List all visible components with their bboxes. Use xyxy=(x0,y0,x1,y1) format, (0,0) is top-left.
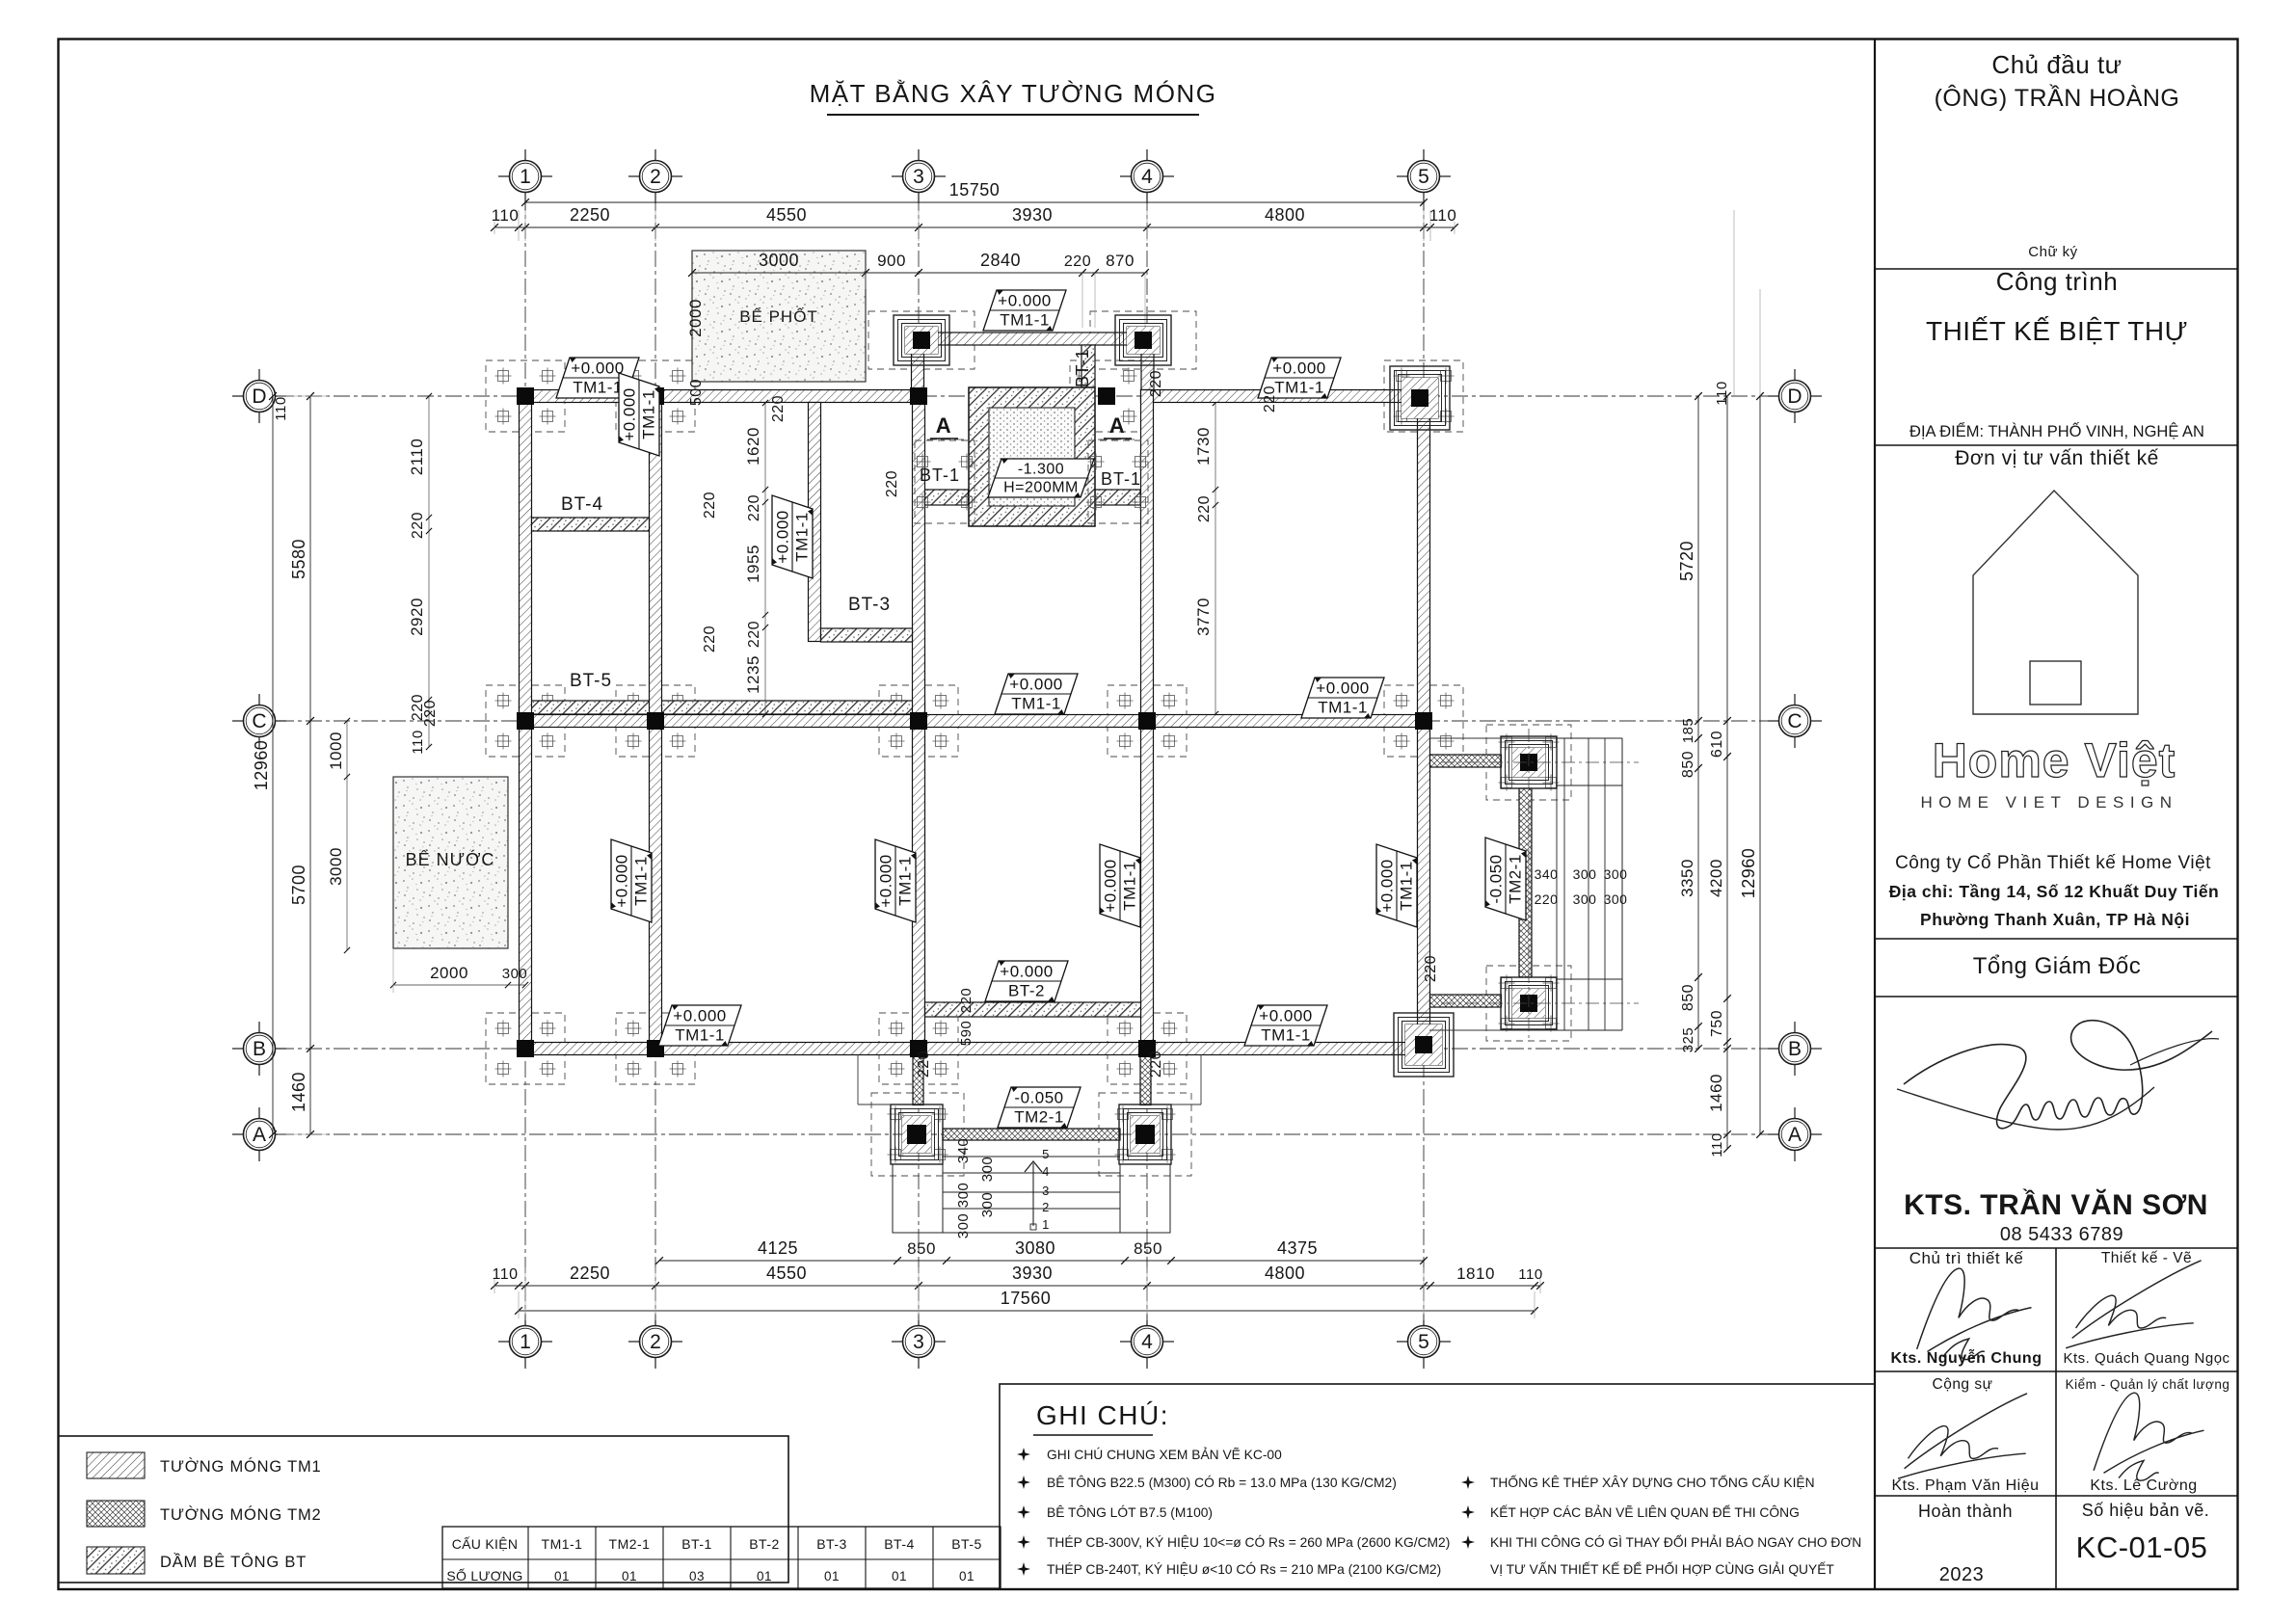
svg-text:08 5433 6789: 08 5433 6789 xyxy=(2000,1224,2123,1245)
svg-text:340: 340 xyxy=(1535,866,1559,882)
svg-text:750: 750 xyxy=(1709,1010,1725,1037)
svg-text:1: 1 xyxy=(520,1331,531,1353)
svg-text:Thiết kế - Vẽ: Thiết kế - Vẽ xyxy=(2101,1250,2192,1266)
svg-text:2: 2 xyxy=(650,166,661,188)
svg-text:+0.000: +0.000 xyxy=(774,510,792,563)
svg-text:-0.050: -0.050 xyxy=(1014,1089,1063,1107)
svg-text:BÊ TÔNG LÓT B7.5 (M100): BÊ TÔNG LÓT B7.5 (M100) xyxy=(1047,1504,1213,1520)
svg-text:110: 110 xyxy=(410,730,426,754)
svg-text:TƯỜNG MÓNG TM1: TƯỜNG MÓNG TM1 xyxy=(160,1457,321,1476)
svg-text:110: 110 xyxy=(492,206,520,225)
svg-text:3: 3 xyxy=(1042,1184,1050,1198)
svg-text:325: 325 xyxy=(1680,1027,1696,1053)
svg-text:15750: 15750 xyxy=(949,180,1001,200)
svg-text:300: 300 xyxy=(955,1183,972,1209)
svg-text:185: 185 xyxy=(1680,718,1696,744)
svg-text:300: 300 xyxy=(979,1192,996,1218)
svg-text:900: 900 xyxy=(877,252,906,270)
svg-text:+0.000: +0.000 xyxy=(1259,1007,1312,1025)
svg-text:4550: 4550 xyxy=(766,1264,807,1283)
svg-text:BT-3: BT-3 xyxy=(848,595,891,615)
svg-text:BỂ NƯỚC: BỂ NƯỚC xyxy=(406,849,495,869)
svg-text:1955: 1955 xyxy=(744,545,762,583)
svg-text:Cộng sự: Cộng sự xyxy=(1933,1376,1993,1393)
svg-text:HOME VIET DESIGN: HOME VIET DESIGN xyxy=(1920,793,2177,811)
svg-text:12960: 12960 xyxy=(1739,848,1758,899)
svg-text:BT-1: BT-1 xyxy=(1073,349,1092,387)
svg-text:TM1-1: TM1-1 xyxy=(1121,861,1139,911)
svg-text:850: 850 xyxy=(1680,751,1696,778)
svg-text:220: 220 xyxy=(1064,253,1091,270)
svg-text:BT-1: BT-1 xyxy=(1101,469,1141,489)
svg-text:KẾT HỢP CÁC BẢN VẼ LIÊN QUAN Đ: KẾT HỢP CÁC BẢN VẼ LIÊN QUAN ĐỂ THI CÔNG xyxy=(1490,1503,1800,1520)
svg-text:BT-5: BT-5 xyxy=(951,1536,982,1552)
svg-text:2000: 2000 xyxy=(430,964,468,982)
svg-text:2: 2 xyxy=(650,1331,661,1353)
svg-text:1235: 1235 xyxy=(744,655,762,694)
svg-text:THIẾT KẾ BIỆT THỰ: THIẾT KẾ BIỆT THỰ xyxy=(1926,316,2188,346)
svg-text:220: 220 xyxy=(1148,1051,1164,1078)
svg-text:A: A xyxy=(1788,1124,1802,1146)
svg-text:1620: 1620 xyxy=(744,427,762,466)
svg-text:01: 01 xyxy=(892,1569,907,1583)
svg-text:01: 01 xyxy=(622,1569,637,1583)
svg-text:TM1-1: TM1-1 xyxy=(573,379,623,397)
svg-text:220: 220 xyxy=(1262,386,1278,412)
svg-text:TM1-1: TM1-1 xyxy=(896,856,915,906)
svg-text:2023: 2023 xyxy=(1939,1564,1985,1585)
svg-text:Chủ trì thiết kế: Chủ trì thiết kế xyxy=(1909,1249,2024,1267)
svg-text:300: 300 xyxy=(1604,866,1628,882)
svg-text:TM1-1: TM1-1 xyxy=(542,1536,583,1552)
svg-text:220: 220 xyxy=(958,988,974,1014)
svg-text:BT-2: BT-2 xyxy=(1008,982,1045,1000)
svg-text:4550: 4550 xyxy=(766,205,807,225)
svg-text:C: C xyxy=(252,710,266,732)
svg-text:Kiểm - Quản lý chất lượng: Kiểm - Quản lý chất lượng xyxy=(2066,1377,2230,1392)
svg-text:1810: 1810 xyxy=(1456,1264,1495,1283)
svg-text:500: 500 xyxy=(688,379,705,406)
svg-text:BT-2: BT-2 xyxy=(749,1536,780,1552)
svg-text:TM1-1: TM1-1 xyxy=(1318,699,1368,717)
svg-text:3: 3 xyxy=(913,1331,924,1353)
svg-text:Tổng Giám Đốc: Tổng Giám Đốc xyxy=(1973,953,2142,979)
svg-text:3770: 3770 xyxy=(1194,598,1213,636)
svg-text:-0.050: -0.050 xyxy=(1487,854,1506,903)
svg-text:BT-3: BT-3 xyxy=(816,1536,847,1552)
svg-text:SỐ LƯỢNG: SỐ LƯỢNG xyxy=(446,1567,522,1583)
svg-text:+0.000: +0.000 xyxy=(1102,859,1120,912)
svg-text:+0.000: +0.000 xyxy=(1009,676,1062,694)
svg-text:KC-01-05: KC-01-05 xyxy=(2076,1530,2208,1564)
svg-text:D: D xyxy=(252,386,266,408)
svg-text:+0.000: +0.000 xyxy=(613,854,631,907)
svg-text:GHI CHÚ CHUNG XEM BẢN VẼ KC-00: GHI CHÚ CHUNG XEM BẢN VẼ KC-00 xyxy=(1047,1447,1282,1462)
svg-text:110: 110 xyxy=(1518,1266,1542,1283)
svg-text:2110: 2110 xyxy=(408,439,426,476)
svg-text:B: B xyxy=(1788,1038,1802,1060)
svg-text:220: 220 xyxy=(1423,955,1439,982)
svg-text:CẤU KIỆN: CẤU KIỆN xyxy=(452,1536,519,1552)
svg-text:2000: 2000 xyxy=(686,299,705,337)
svg-text:3350: 3350 xyxy=(1678,859,1696,897)
svg-text:3930: 3930 xyxy=(1012,205,1053,225)
svg-text:110: 110 xyxy=(273,396,289,420)
svg-text:Kts. Phạm Văn Hiệu: Kts. Phạm Văn Hiệu xyxy=(1891,1477,2039,1494)
svg-text:1: 1 xyxy=(520,166,531,188)
svg-text:300: 300 xyxy=(1604,891,1628,907)
svg-text:01: 01 xyxy=(554,1569,570,1583)
svg-text:BT-1: BT-1 xyxy=(920,466,960,485)
svg-text:220: 220 xyxy=(702,625,718,652)
svg-text:TƯỜNG MÓNG TM2: TƯỜNG MÓNG TM2 xyxy=(160,1505,321,1524)
svg-text:110: 110 xyxy=(492,1266,518,1283)
svg-text:THÉP CB-300V, KÝ HIỆU 10<=ø CÓ: THÉP CB-300V, KÝ HIỆU 10<=ø CÓ Rs = 260 … xyxy=(1047,1534,1450,1550)
svg-text:TM1-1: TM1-1 xyxy=(1274,379,1324,397)
svg-text:220: 220 xyxy=(770,395,787,422)
svg-text:300: 300 xyxy=(1573,866,1597,882)
svg-text:01: 01 xyxy=(757,1569,772,1583)
svg-text:01: 01 xyxy=(824,1569,840,1583)
svg-text:KTS. TRẦN VĂN SƠN: KTS. TRẦN VĂN SƠN xyxy=(1904,1188,2208,1221)
svg-text:4125: 4125 xyxy=(758,1238,798,1258)
svg-text:2: 2 xyxy=(1042,1200,1050,1214)
svg-text:12960: 12960 xyxy=(252,740,271,791)
svg-text:220: 220 xyxy=(1535,891,1559,907)
svg-text:+0.000: +0.000 xyxy=(571,359,624,378)
svg-text:220: 220 xyxy=(1196,495,1213,522)
svg-text:Home Việt: Home Việt xyxy=(1933,733,2176,787)
svg-text:2250: 2250 xyxy=(570,205,610,225)
svg-text:4200: 4200 xyxy=(1707,859,1725,897)
svg-text:17560: 17560 xyxy=(1001,1289,1052,1308)
svg-text:(ÔNG) TRẦN HOÀNG: (ÔNG) TRẦN HOÀNG xyxy=(1935,84,2180,112)
svg-text:1: 1 xyxy=(1042,1217,1050,1232)
svg-text:3000: 3000 xyxy=(327,847,345,886)
svg-text:TM1-1: TM1-1 xyxy=(793,512,812,562)
svg-text:TM1-1: TM1-1 xyxy=(1000,311,1050,330)
svg-text:TM1-1: TM1-1 xyxy=(640,389,658,439)
svg-text:Công ty Cổ Phần Thiết kế Home: Công ty Cổ Phần Thiết kế Home Việt xyxy=(1895,853,2211,873)
svg-text:BT-4: BT-4 xyxy=(561,494,603,515)
svg-text:+0.000: +0.000 xyxy=(1316,679,1369,698)
svg-text:BT-1: BT-1 xyxy=(681,1536,712,1552)
svg-text:220: 220 xyxy=(702,492,718,519)
svg-text:5: 5 xyxy=(1042,1147,1050,1161)
svg-text:-1.300: -1.300 xyxy=(1018,462,1064,478)
svg-text:4800: 4800 xyxy=(1265,205,1305,225)
svg-text:A: A xyxy=(936,413,951,438)
svg-text:+0.000: +0.000 xyxy=(998,292,1051,310)
svg-text:5: 5 xyxy=(1418,166,1429,188)
svg-text:3: 3 xyxy=(913,166,924,188)
svg-text:01: 01 xyxy=(959,1569,974,1583)
svg-text:THỐNG KÊ THÉP XÂY DỰNG CHO TỔN: THỐNG KÊ THÉP XÂY DỰNG CHO TỔNG CẤU KIỆN xyxy=(1490,1474,1815,1490)
svg-text:DẦM BÊ TÔNG BT: DẦM BÊ TÔNG BT xyxy=(160,1553,307,1571)
svg-text:5580: 5580 xyxy=(289,539,308,579)
svg-text:TM1-1: TM1-1 xyxy=(1398,861,1416,911)
svg-text:Địa chỉ: Tầng 14, Số 12 Khuất: Địa chỉ: Tầng 14, Số 12 Khuất Duy Tiến xyxy=(1889,882,2220,901)
svg-text:590: 590 xyxy=(958,1021,974,1047)
svg-text:220: 220 xyxy=(916,1051,932,1078)
svg-text:TM1-1: TM1-1 xyxy=(675,1026,725,1045)
svg-text:1000: 1000 xyxy=(327,732,345,770)
svg-text:+0.000: +0.000 xyxy=(1272,359,1325,378)
svg-text:+0.000: +0.000 xyxy=(621,387,639,440)
svg-text:Phường Thanh Xuân, TP Hà Nội: Phường Thanh Xuân, TP Hà Nội xyxy=(1920,910,2190,929)
svg-text:GHI CHÚ:: GHI CHÚ: xyxy=(1036,1400,1169,1430)
svg-text:4: 4 xyxy=(1141,166,1153,188)
svg-text:1460: 1460 xyxy=(1707,1074,1725,1112)
svg-text:A: A xyxy=(1109,413,1125,438)
svg-text:D: D xyxy=(1787,386,1802,408)
svg-text:3930: 3930 xyxy=(1012,1264,1053,1283)
svg-text:850: 850 xyxy=(1680,984,1696,1011)
svg-text:340: 340 xyxy=(955,1138,972,1164)
svg-text:Kts. Quách Quang Ngọc: Kts. Quách Quang Ngọc xyxy=(2063,1350,2229,1367)
svg-text:MẶT BẰNG XÂY TƯỜNG MÓNG: MẶT BẰNG XÂY TƯỜNG MÓNG xyxy=(810,79,1217,108)
svg-text:BT-4: BT-4 xyxy=(884,1536,915,1552)
svg-text:BT-5: BT-5 xyxy=(570,671,612,691)
svg-text:B: B xyxy=(253,1038,266,1060)
svg-text:870: 870 xyxy=(1106,252,1135,270)
svg-text:220: 220 xyxy=(746,494,762,521)
svg-text:5700: 5700 xyxy=(289,865,308,905)
svg-text:THÉP CB-240T, KÝ HIỆU ø<10 CÓ: THÉP CB-240T, KÝ HIỆU ø<10 CÓ Rs = 210 M… xyxy=(1047,1561,1441,1577)
svg-text:2920: 2920 xyxy=(408,598,426,636)
svg-text:+0.000: +0.000 xyxy=(673,1007,726,1025)
svg-text:2840: 2840 xyxy=(980,251,1021,270)
svg-text:ĐỊA ĐIỂM: THÀNH PHỐ VINH, NGHỆ: ĐỊA ĐIỂM: THÀNH PHỐ VINH, NGHỆ AN xyxy=(1909,421,2204,440)
svg-text:BỂ PHỐT: BỂ PHỐT xyxy=(739,306,818,326)
svg-text:300: 300 xyxy=(979,1157,996,1183)
svg-text:5: 5 xyxy=(1418,1331,1429,1353)
svg-text:1730: 1730 xyxy=(1194,427,1213,466)
svg-text:4: 4 xyxy=(1042,1164,1050,1179)
svg-text:+0.000: +0.000 xyxy=(1000,963,1053,981)
svg-text:610: 610 xyxy=(1709,731,1725,758)
svg-text:3080: 3080 xyxy=(1015,1238,1055,1258)
svg-text:220: 220 xyxy=(422,700,439,727)
svg-text:TM1-1: TM1-1 xyxy=(1011,695,1061,713)
svg-text:C: C xyxy=(1787,710,1802,732)
svg-text:850: 850 xyxy=(907,1239,936,1258)
svg-text:Hoàn thành: Hoàn thành xyxy=(1918,1502,2013,1521)
svg-text:TM1-1: TM1-1 xyxy=(632,856,651,906)
svg-text:220: 220 xyxy=(1148,370,1164,397)
svg-text:4375: 4375 xyxy=(1277,1238,1318,1258)
svg-text:TM2-1: TM2-1 xyxy=(609,1536,651,1552)
svg-text:220: 220 xyxy=(746,621,762,648)
svg-text:Kts. Nguyễn Chung: Kts. Nguyễn Chung xyxy=(1891,1348,2042,1367)
svg-text:850: 850 xyxy=(1134,1239,1162,1258)
svg-text:TM2-1: TM2-1 xyxy=(1014,1108,1064,1127)
svg-text:300: 300 xyxy=(1573,891,1597,907)
svg-text:+0.000: +0.000 xyxy=(877,854,895,907)
svg-text:Chủ đầu tư: Chủ đầu tư xyxy=(1991,50,2122,79)
svg-text:4: 4 xyxy=(1141,1331,1153,1353)
svg-text:A: A xyxy=(253,1124,266,1146)
svg-text:110: 110 xyxy=(1429,206,1457,225)
svg-text:3000: 3000 xyxy=(759,251,799,270)
svg-text:KHI THI CÔNG CÓ GÌ THAY ĐỔI PH: KHI THI CÔNG CÓ GÌ THAY ĐỔI PHẢI BÁO NGA… xyxy=(1490,1533,1861,1550)
svg-text:1460: 1460 xyxy=(289,1072,308,1112)
svg-text:300: 300 xyxy=(955,1213,972,1239)
svg-text:Số hiệu bản vẽ.: Số hiệu bản vẽ. xyxy=(2082,1501,2210,1520)
svg-text:Chữ ký: Chữ ký xyxy=(2028,244,2077,260)
svg-text:Công trình: Công trình xyxy=(1996,267,2118,296)
svg-text:110: 110 xyxy=(1709,1132,1725,1157)
svg-text:BÊ TÔNG B22.5 (M300) CÓ Rb = 1: BÊ TÔNG B22.5 (M300) CÓ Rb = 13.0 MPa (1… xyxy=(1047,1475,1397,1490)
svg-text:H=200MM: H=200MM xyxy=(1003,480,1079,496)
svg-text:03: 03 xyxy=(689,1569,705,1583)
svg-text:110: 110 xyxy=(1714,381,1730,405)
svg-text:220: 220 xyxy=(410,512,426,539)
svg-text:2250: 2250 xyxy=(570,1264,610,1283)
svg-text:300: 300 xyxy=(502,966,528,982)
svg-text:220: 220 xyxy=(884,470,900,497)
svg-text:Đơn vị tư vấn thiết kế: Đơn vị tư vấn thiết kế xyxy=(1955,447,2159,469)
svg-text:TM1-1: TM1-1 xyxy=(1261,1026,1311,1045)
svg-text:4800: 4800 xyxy=(1265,1264,1305,1283)
svg-text:Kts. Lê Cường: Kts. Lê Cường xyxy=(2090,1477,2197,1494)
svg-text:5720: 5720 xyxy=(1677,541,1696,581)
svg-text:+0.000: +0.000 xyxy=(1378,859,1397,912)
svg-text:VỊ TƯ VẤN THIẾT KẾ ĐỂ PHỐI HỢP: VỊ TƯ VẤN THIẾT KẾ ĐỂ PHỐI HỢP CÙNG GIẢI… xyxy=(1490,1560,1834,1577)
svg-text:TM2-1: TM2-1 xyxy=(1507,854,1525,904)
